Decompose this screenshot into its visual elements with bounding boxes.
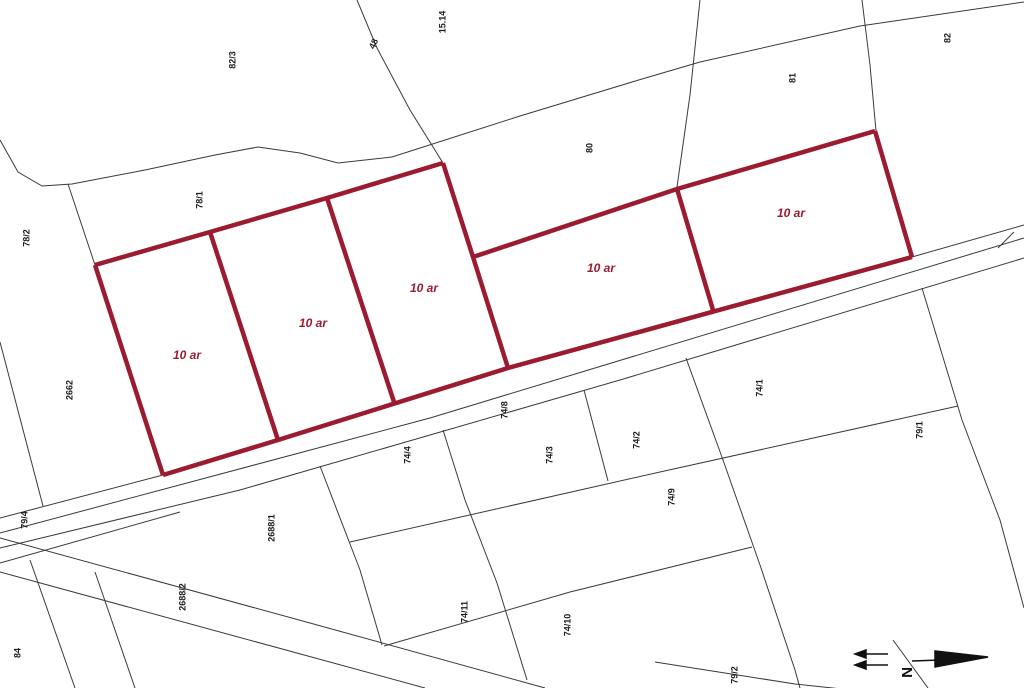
parcel-label-2662: 2662: [66, 380, 75, 400]
cadastral-map-svg: N: [0, 0, 1024, 688]
parcel-label-78-1: 78/1: [196, 191, 205, 209]
parcel-boundaries: [0, 0, 1024, 688]
parcel-label-79-4: 79/4: [21, 511, 30, 529]
parcel-label-2688-1: 2688/1: [268, 514, 277, 542]
parcel-label-15-14: 15.14: [439, 11, 448, 34]
parcel-label-2688-2: 2688/2: [179, 583, 188, 611]
parcel-label-74-9: 74/9: [668, 488, 677, 506]
parcel-label-74-3: 74/3: [546, 446, 555, 464]
area-label-plot-2: 10 ar: [299, 317, 327, 329]
parcel-label-74-11: 74/11: [461, 601, 470, 623]
area-label-plot-5: 10 ar: [777, 207, 805, 219]
parcel-label-80: 80: [586, 143, 595, 153]
parcel-label-78-2: 78/2: [23, 229, 32, 247]
parcel-label-74-8: 74/8: [501, 401, 510, 419]
north-arrow: N: [855, 650, 988, 678]
parcel-label-79-1: 79/1: [916, 421, 925, 439]
area-label-plot-3: 10 ar: [410, 282, 438, 294]
parcel-label-74-1: 74/1: [756, 379, 765, 397]
cadastral-map: N 82/3 15.14 48 80 81 82 78/1 78/2 2662 …: [0, 0, 1024, 688]
highlighted-parcels: [95, 131, 912, 475]
parcel-label-74-2: 74/2: [633, 431, 642, 449]
north-arrow-letter: N: [898, 667, 915, 678]
area-label-plot-4: 10 ar: [587, 262, 615, 274]
parcel-label-79-2: 79/2: [731, 666, 740, 684]
road-lines: [0, 225, 1024, 563]
area-label-plot-1: 10 ar: [173, 349, 201, 361]
parcel-label-74-10: 74/10: [564, 614, 573, 637]
parcel-label-84: 84: [14, 648, 23, 658]
parcel-label-82: 82: [944, 33, 953, 43]
parcel-label-81: 81: [789, 73, 798, 83]
parcel-label-82-3: 82/3: [229, 51, 238, 69]
parcel-label-74-4: 74/4: [404, 446, 413, 464]
